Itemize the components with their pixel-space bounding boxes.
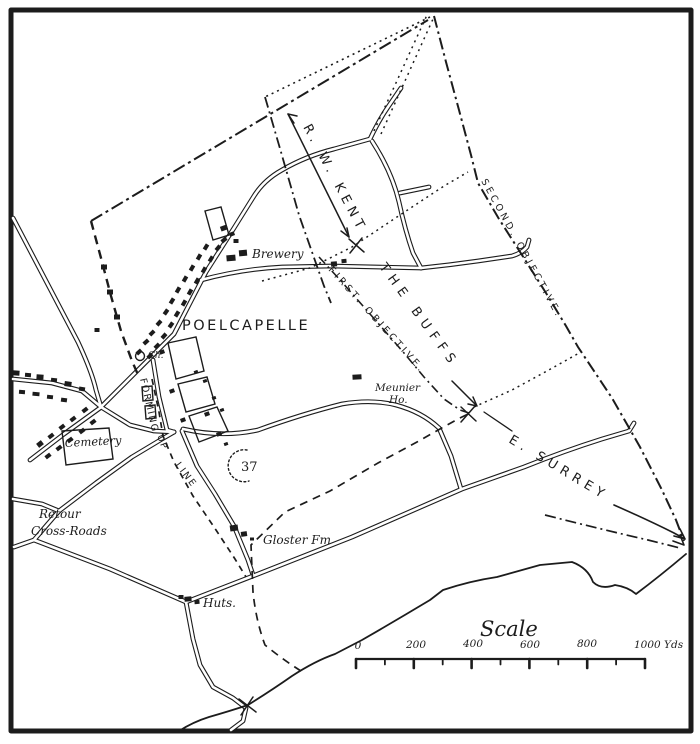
buffs-label: THE BUFFS — [375, 260, 461, 371]
scale-tick-0: 0 — [355, 640, 362, 652]
meunier-label-line1: Meunier — [374, 382, 421, 394]
building-block — [203, 379, 208, 383]
village-block-outline — [168, 337, 204, 379]
retour-label-line1: Retour — [38, 507, 82, 521]
building-block — [239, 250, 247, 257]
scale-bar: Scale 0 200 400 600 800 1000 Yds — [355, 617, 684, 668]
scale-tick-400: 400 — [462, 638, 483, 650]
boundary-crossing-x2 — [461, 406, 476, 422]
large-building-outline — [205, 207, 229, 240]
huts-label: Huts. — [202, 596, 236, 610]
boundary-lines — [91, 15, 684, 671]
cemetery-label: Cemetery — [64, 433, 122, 450]
road-casing — [186, 602, 246, 730]
building-block — [241, 531, 248, 537]
building-block — [64, 381, 72, 387]
track-dotted-x2 — [474, 352, 581, 407]
building-block — [184, 596, 191, 602]
building-block — [163, 308, 170, 315]
scale-tick-800: 800 — [577, 638, 597, 650]
building-block — [58, 424, 65, 431]
scale-title: Scale — [480, 617, 538, 641]
building-block — [107, 290, 113, 295]
stream-course — [179, 554, 686, 731]
first-objective-label: FIRST. OBJECTIVE. — [326, 265, 428, 376]
building-block — [148, 329, 155, 336]
arrowhead-nw-icon — [288, 114, 297, 123]
building-block — [44, 453, 51, 460]
church-label: Ch. — [148, 351, 164, 361]
map-border — [11, 10, 691, 731]
scale-tick-600: 600 — [520, 639, 540, 651]
building-block — [182, 275, 188, 282]
surrey-boundary-link — [484, 412, 512, 431]
divisional-boundary-dashdot — [265, 97, 331, 303]
building-block — [204, 411, 210, 416]
surrey-boundary-dashdot — [545, 515, 680, 548]
building-block — [180, 417, 186, 422]
road — [186, 602, 246, 730]
road-casing — [372, 141, 421, 268]
building-block — [19, 390, 25, 394]
trench-map-page: Scale 0 200 400 600 800 1000 Yds POELCAP… — [0, 0, 700, 744]
rw-kent-label: R. W. KENT — [299, 122, 369, 236]
building-block — [175, 286, 181, 293]
brewery-label: Brewery — [251, 247, 304, 261]
buffs-boundary-arrow — [452, 381, 477, 406]
town-label: POELCAPELLE — [182, 318, 310, 334]
stream — [179, 554, 686, 731]
poelcapelle-trench-map: Scale 0 200 400 600 800 1000 Yds POELCAP… — [0, 0, 700, 744]
gloster-farm-label: Gloster Fm — [263, 533, 331, 547]
building-block — [224, 442, 229, 446]
building-block — [169, 297, 176, 304]
building-block — [101, 265, 107, 270]
building-block — [36, 374, 43, 379]
road — [182, 431, 253, 575]
building-block — [36, 440, 44, 448]
scale-bar-ticks — [356, 659, 645, 668]
building-block — [89, 419, 96, 426]
building-block — [114, 315, 120, 320]
assembly-area-boundary-s — [91, 221, 139, 377]
second-objective-label: SECOND. OBJECTIVE. — [478, 177, 564, 320]
hill-37-label: 37 — [241, 460, 258, 475]
village-block-outline — [178, 377, 215, 412]
building-block — [203, 243, 210, 250]
building-block — [169, 388, 175, 393]
building-block — [55, 445, 62, 452]
building-block — [25, 373, 31, 377]
building-block — [142, 339, 149, 346]
building-block — [194, 600, 199, 604]
building-block — [174, 310, 181, 317]
building-block — [32, 392, 39, 397]
building-block — [196, 253, 202, 260]
building-block — [156, 319, 163, 326]
building-block — [168, 321, 175, 328]
building-block — [341, 259, 346, 263]
building-block — [69, 416, 76, 423]
surrey-boundary-arrow — [614, 505, 685, 539]
building-block — [226, 255, 235, 262]
building-block — [220, 408, 225, 412]
building-block — [230, 524, 239, 531]
tactical-labels: R. W. KENT THE BUFFS E. SURREY FIRST. OB… — [137, 122, 611, 504]
building-block — [81, 407, 88, 414]
building-block — [47, 395, 53, 400]
building-block — [234, 239, 239, 243]
building-block — [61, 398, 67, 403]
building-block — [51, 378, 57, 383]
building-block — [189, 264, 195, 271]
building-block — [47, 433, 54, 440]
road-continuation-dotted-2 — [381, 19, 433, 134]
building-block — [250, 538, 254, 541]
building-block — [179, 595, 184, 599]
divisional-boundary-dotted — [265, 17, 430, 97]
building-block — [12, 370, 19, 375]
retour-label-line2: Cross-Roads — [31, 524, 107, 538]
meunier-label-line2: Ho. — [388, 394, 408, 406]
scale-tick-1000: 1000 Yds — [634, 639, 684, 651]
building-block — [352, 374, 361, 379]
scale-tick-200: 200 — [405, 639, 426, 651]
building-block — [95, 328, 100, 332]
building-block — [78, 428, 85, 435]
